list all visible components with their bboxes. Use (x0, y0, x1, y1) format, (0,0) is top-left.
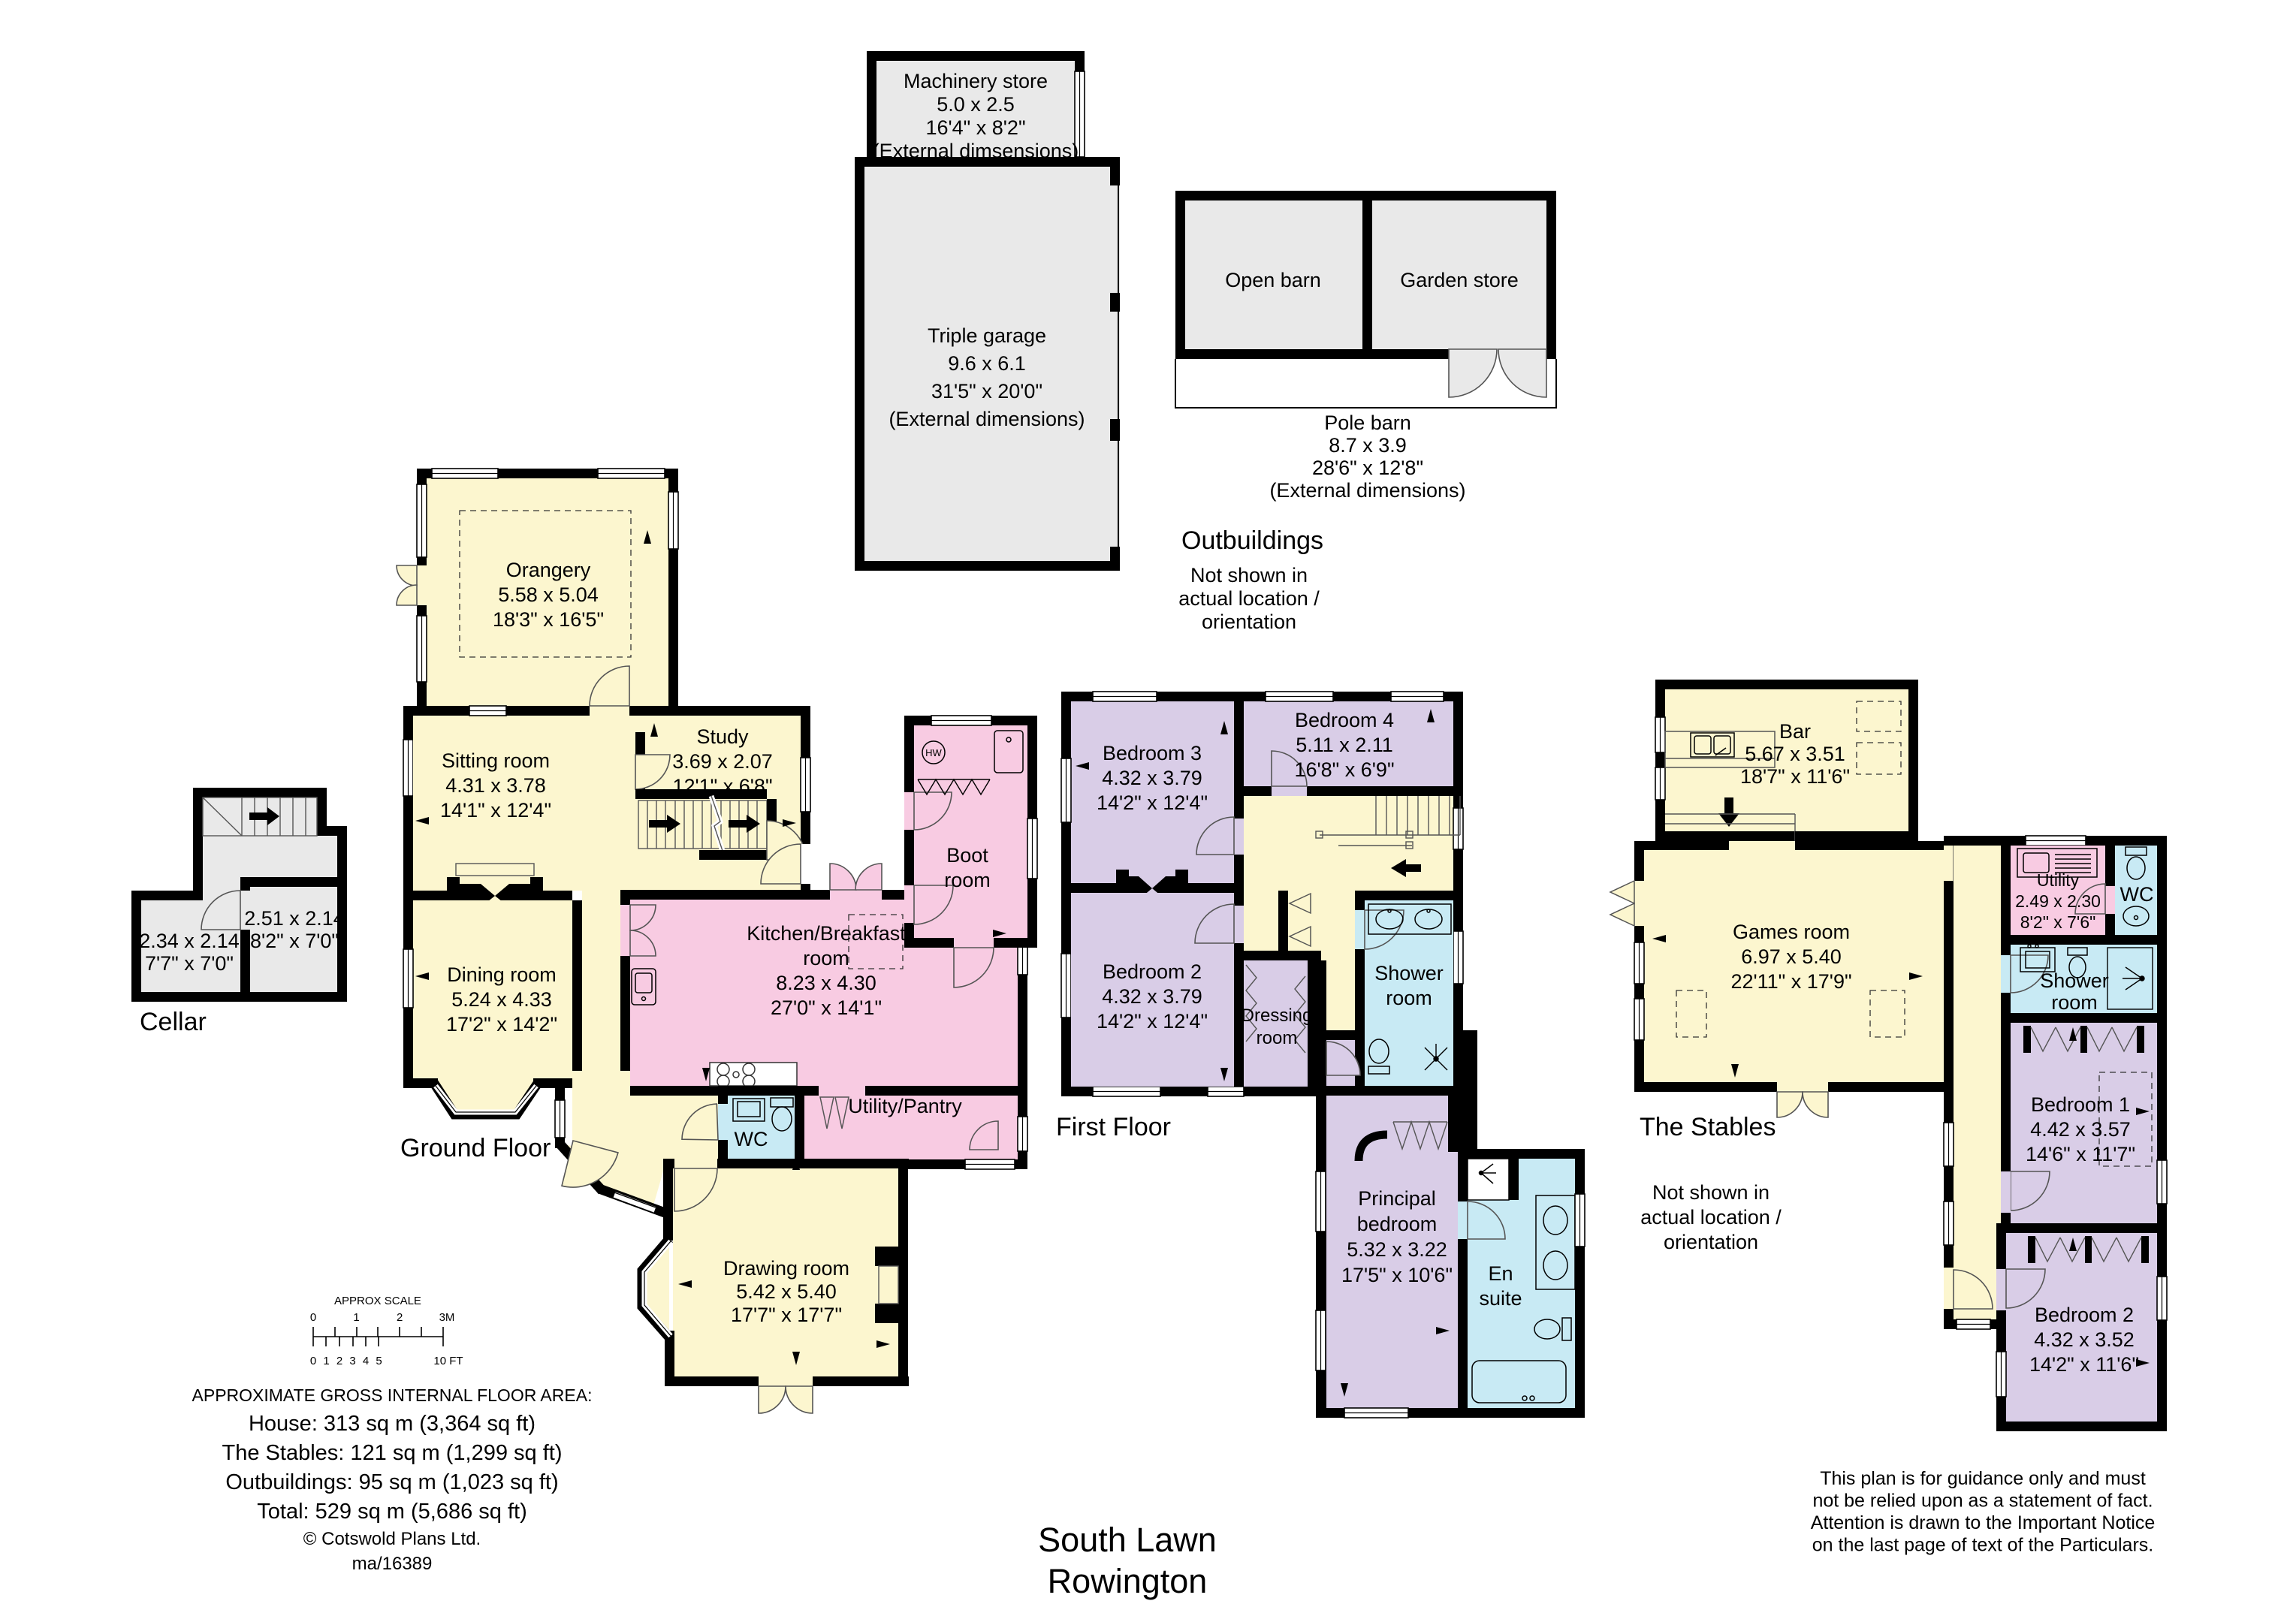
svg-text:8'2" x 7'0": 8'2" x 7'0" (250, 930, 339, 952)
svg-text:8'2" x 7'6": 8'2" x 7'6" (2020, 912, 2096, 932)
svg-text:Bedroom 3: Bedroom 3 (1103, 742, 1202, 764)
svg-text:room: room (1257, 1028, 1298, 1048)
svg-text:14'1" x 12'4": 14'1" x 12'4" (440, 799, 551, 822)
svg-text:(External dimsensions): (External dimsensions) (873, 140, 1079, 162)
svg-text:4: 4 (363, 1355, 369, 1367)
svg-text:Garden store: Garden store (1400, 269, 1519, 291)
svg-text:orientation: orientation (1664, 1231, 1758, 1253)
svg-text:Open barn: Open barn (1225, 269, 1321, 291)
svg-text:WC: WC (2120, 883, 2154, 906)
svg-text:8.7 x 3.9: 8.7 x 3.9 (1329, 434, 1407, 457)
svg-text:17'5" x 10'6": 17'5" x 10'6" (1341, 1264, 1453, 1286)
svg-text:on the last page of text of th: on the last page of text of the Particul… (1812, 1535, 2153, 1556)
svg-text:suite: suite (1479, 1287, 1522, 1310)
svg-text:14'2" x 11'6": 14'2" x 11'6" (2029, 1353, 2139, 1376)
svg-text:14'6" x 11'7": 14'6" x 11'7" (2026, 1143, 2135, 1165)
svg-text:14'2" x 12'4": 14'2" x 12'4" (1097, 791, 1208, 814)
svg-text:Principal: Principal (1358, 1187, 1436, 1210)
svg-text:0: 0 (310, 1311, 316, 1324)
svg-text:5: 5 (376, 1355, 382, 1367)
svg-text:Study: Study (696, 725, 749, 748)
svg-text:Bedroom 2: Bedroom 2 (2035, 1304, 2134, 1326)
svg-text:Shower: Shower (2040, 969, 2109, 992)
svg-text:The Stables: The Stables (1640, 1113, 1776, 1141)
svg-text:Rowington: Rowington (1048, 1562, 1208, 1600)
svg-text:APPROXIMATE GROSS INTERNAL FLO: APPROXIMATE GROSS INTERNAL FLOOR AREA: (192, 1385, 593, 1405)
svg-text:0: 0 (310, 1355, 316, 1367)
svg-text:Games room: Games room (1733, 921, 1850, 943)
svg-text:Kitchen/Breakfast: Kitchen/Breakfast (747, 922, 906, 945)
svg-text:Dressing: Dressing (1242, 1005, 1313, 1026)
svg-text:17'7" x 17'7": 17'7" x 17'7" (731, 1304, 842, 1326)
svg-text:Total: 529 sq m (5,686 sq ft): Total: 529 sq m (5,686 sq ft) (257, 1500, 526, 1524)
svg-text:actual location /: actual location / (1178, 587, 1320, 610)
svg-text:Attention is drawn to the Impo: Attention is drawn to the Important Noti… (1811, 1512, 2156, 1533)
svg-text:House: 313 sq m (3,364 sq ft): House: 313 sq m (3,364 sq ft) (249, 1412, 536, 1436)
svg-text:Utility/Pantry: Utility/Pantry (848, 1095, 962, 1117)
svg-text:room: room (803, 947, 849, 969)
svg-text:room: room (1386, 987, 1432, 1009)
svg-text:Bedroom 4: Bedroom 4 (1295, 709, 1394, 731)
svg-text:Pole barn: Pole barn (1324, 412, 1411, 434)
svg-text:room: room (944, 869, 991, 891)
svg-text:4.31 x 3.78: 4.31 x 3.78 (445, 774, 546, 797)
svg-text:Drawing room: Drawing room (723, 1257, 849, 1280)
svg-text:5.0 x 2.5: 5.0 x 2.5 (937, 93, 1015, 116)
svg-text:4.32 x 3.79: 4.32 x 3.79 (1102, 985, 1202, 1008)
svg-text:Triple garage: Triple garage (928, 324, 1046, 347)
svg-text:actual location /: actual location / (1640, 1206, 1782, 1229)
svg-text:2: 2 (397, 1311, 403, 1324)
svg-text:12'1" x 6'8": 12'1" x 6'8" (672, 775, 772, 797)
svg-text:APPROX SCALE: APPROX SCALE (334, 1295, 421, 1307)
svg-text:27'0" x 14'1": 27'0" x 14'1" (771, 996, 882, 1019)
svg-text:5.58 x 5.04: 5.58 x 5.04 (498, 583, 599, 606)
svg-text:9.6 x 6.1: 9.6 x 6.1 (948, 352, 1026, 375)
svg-text:not be relied upon as a statem: not be relied upon as a statement of fac… (1812, 1491, 2153, 1512)
svg-text:En: En (1488, 1262, 1513, 1285)
svg-text:Outbuildings: Outbuildings (1181, 526, 1323, 555)
svg-text:2.51 x 2.14: 2.51 x 2.14 (244, 907, 345, 930)
svg-text:5.11 x 2.11: 5.11 x 2.11 (1296, 734, 1393, 756)
svg-text:3: 3 (349, 1355, 355, 1367)
svg-text:18'7" x 11'6": 18'7" x 11'6" (1740, 765, 1850, 788)
svg-text:7'7" x 7'0": 7'7" x 7'0" (145, 952, 234, 975)
svg-text:Not shown in: Not shown in (1190, 564, 1308, 586)
svg-text:First Floor: First Floor (1056, 1113, 1171, 1141)
svg-text:5.24 x 4.33: 5.24 x 4.33 (451, 988, 552, 1011)
svg-text:© Cotswold Plans Ltd.: © Cotswold Plans Ltd. (303, 1529, 481, 1549)
svg-text:31'5" x 20'0": 31'5" x 20'0" (931, 380, 1042, 402)
svg-text:(External dimensions): (External dimensions) (889, 408, 1085, 430)
svg-text:HW: HW (925, 747, 942, 758)
svg-text:Outbuildings: 95 sq m (1,023 s: Outbuildings: 95 sq m (1,023 sq ft) (225, 1470, 558, 1494)
svg-text:5.67 x 3.51: 5.67 x 3.51 (1745, 743, 1845, 765)
svg-text:Bedroom 2: Bedroom 2 (1103, 960, 1202, 983)
svg-text:18'3" x 16'5": 18'3" x 16'5" (493, 608, 604, 631)
svg-text:This plan is for guidance only: This plan is for guidance only and must (1820, 1468, 2146, 1489)
svg-text:4.32 x 3.79: 4.32 x 3.79 (1102, 767, 1202, 789)
svg-text:orientation: orientation (1202, 611, 1296, 633)
svg-text:8.23 x 4.30: 8.23 x 4.30 (776, 972, 876, 994)
svg-text:5.42 x 5.40: 5.42 x 5.40 (736, 1280, 837, 1303)
svg-text:Machinery store: Machinery store (904, 70, 1048, 92)
svg-text:South Lawn: South Lawn (1038, 1521, 1217, 1559)
svg-text:The Stables: 121 sq m (1,299 s: The Stables: 121 sq m (1,299 sq ft) (222, 1441, 563, 1465)
svg-text:17'2" x 14'2": 17'2" x 14'2" (446, 1013, 557, 1036)
svg-text:16'4" x 8'2": 16'4" x 8'2" (925, 116, 1025, 139)
svg-text:Bedroom 1: Bedroom 1 (2031, 1093, 2130, 1116)
svg-text:Shower: Shower (1374, 962, 1444, 984)
svg-text:Cellar: Cellar (140, 1008, 207, 1036)
svg-text:Not shown in: Not shown in (1652, 1181, 1770, 1204)
svg-text:28'6" x 12'8": 28'6" x 12'8" (1312, 457, 1423, 479)
svg-text:(External dimensions): (External dimensions) (1269, 479, 1465, 502)
svg-text:3.69 x 2.07: 3.69 x 2.07 (672, 750, 773, 773)
svg-text:14'2" x 12'4": 14'2" x 12'4" (1097, 1010, 1208, 1033)
svg-text:Bar: Bar (1779, 720, 1811, 743)
svg-text:10 FT: 10 FT (433, 1355, 463, 1367)
svg-text:bedroom: bedroom (1357, 1213, 1438, 1235)
svg-text:Orangery: Orangery (506, 559, 591, 581)
svg-text:3M: 3M (439, 1311, 455, 1324)
svg-text:Utility: Utility (2037, 870, 2080, 890)
svg-text:1: 1 (353, 1311, 359, 1324)
svg-text:WC: WC (735, 1128, 768, 1150)
svg-text:22'11" x 17'9": 22'11" x 17'9" (1730, 970, 1851, 993)
svg-text:ma/16389: ma/16389 (352, 1554, 433, 1574)
svg-text:16'8" x 6'9": 16'8" x 6'9" (1294, 758, 1394, 781)
svg-text:2.49 x 2.30: 2.49 x 2.30 (2015, 891, 2101, 911)
svg-text:Ground Floor: Ground Floor (400, 1134, 551, 1162)
svg-text:1: 1 (323, 1355, 329, 1367)
svg-text:Sitting room: Sitting room (442, 749, 550, 772)
svg-text:4.42 x 3.57: 4.42 x 3.57 (2030, 1118, 2131, 1141)
svg-text:Dining room: Dining room (447, 963, 557, 986)
svg-text:5.32 x 3.22: 5.32 x 3.22 (1347, 1238, 1447, 1261)
svg-text:6.97 x 5.40: 6.97 x 5.40 (1741, 945, 1842, 968)
svg-text:Boot: Boot (946, 844, 988, 867)
svg-text:room: room (2051, 991, 2098, 1014)
svg-text:2.34 x 2.14: 2.34 x 2.14 (139, 930, 240, 952)
svg-text:4.32 x 3.52: 4.32 x 3.52 (2034, 1328, 2135, 1351)
svg-text:2: 2 (336, 1355, 342, 1367)
